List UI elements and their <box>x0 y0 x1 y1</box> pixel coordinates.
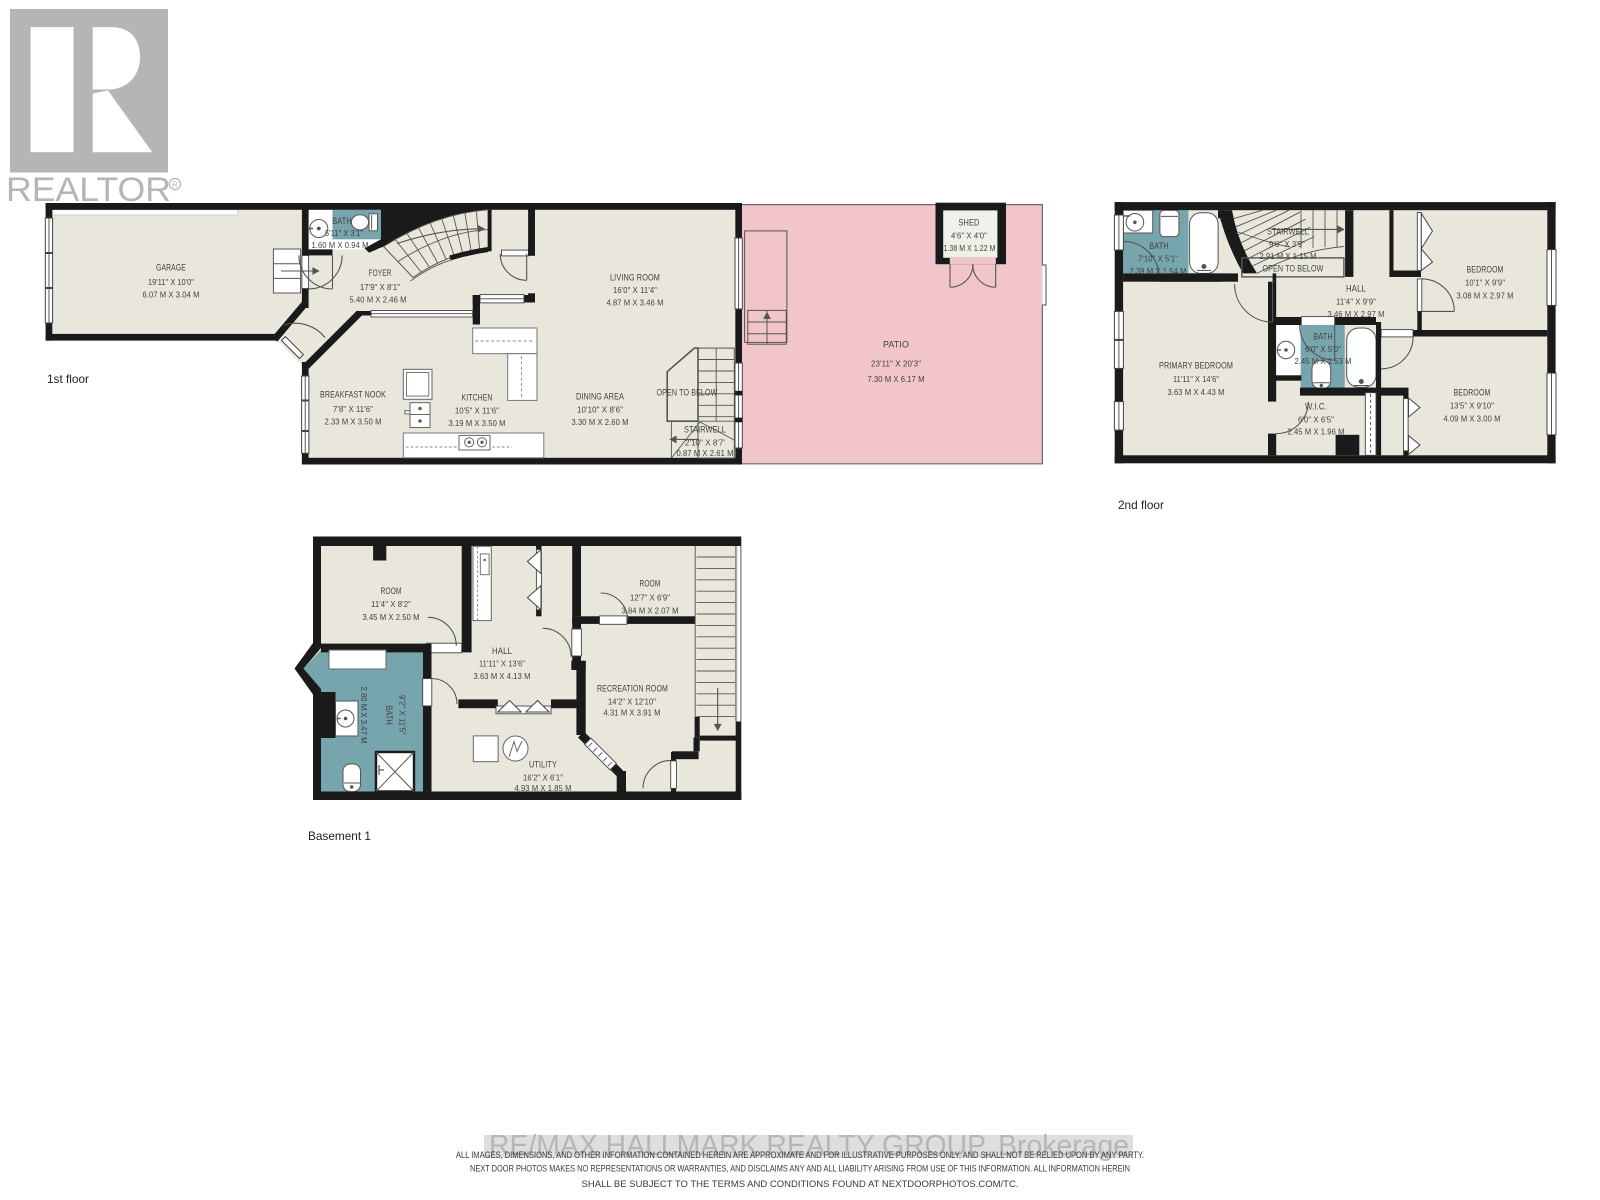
svg-text:BEDROOM: BEDROOM <box>1467 265 1504 275</box>
svg-text:11'11" X 13'6": 11'11" X 13'6" <box>479 659 525 669</box>
svg-text:RECREATION ROOM: RECREATION ROOM <box>597 684 668 694</box>
svg-text:FOYER: FOYER <box>369 268 392 278</box>
svg-text:3.45 M X 2.50 M: 3.45 M X 2.50 M <box>363 612 420 622</box>
svg-text:HALL: HALL <box>492 646 512 656</box>
svg-text:4.31 M X 3.91 M: 4.31 M X 3.91 M <box>604 708 661 718</box>
svg-text:3.30 M X 2.60 M: 3.30 M X 2.60 M <box>572 417 629 427</box>
svg-text:OPEN TO BELOW: OPEN TO BELOW <box>1263 264 1324 274</box>
svg-text:19'11" X 10'0": 19'11" X 10'0" <box>148 277 194 287</box>
svg-text:11'4" X 9'9": 11'4" X 9'9" <box>1336 297 1376 307</box>
svg-text:16'2" X 6'1": 16'2" X 6'1" <box>523 773 563 783</box>
svg-text:BREAKFAST NOOK: BREAKFAST NOOK <box>320 390 387 400</box>
svg-text:HALL: HALL <box>1346 284 1366 294</box>
svg-text:2.91 M X 1.15 M: 2.91 M X 1.15 M <box>1260 251 1317 261</box>
svg-text:5.40 M X 2.46 M: 5.40 M X 2.46 M <box>350 295 407 305</box>
svg-text:ROOM: ROOM <box>640 579 661 589</box>
svg-text:KITCHEN: KITCHEN <box>462 393 493 403</box>
svg-text:1.38 M X 1.22 M: 1.38 M X 1.22 M <box>944 243 996 253</box>
svg-text:11'4" X 8'2": 11'4" X 8'2" <box>371 599 411 609</box>
svg-text:2.80 M X 3.47 M: 2.80 M X 3.47 M <box>359 687 369 744</box>
svg-text:SHED: SHED <box>959 218 980 228</box>
svg-text:4'6" X 4'0": 4'6" X 4'0" <box>951 231 987 241</box>
svg-text:DINING AREA: DINING AREA <box>576 392 625 402</box>
svg-text:9'2" X 11'5": 9'2" X 11'5" <box>398 695 408 735</box>
svg-text:16'0" X 11'4": 16'0" X 11'4" <box>613 285 657 295</box>
svg-text:3.84 M X 2.07 M: 3.84 M X 2.07 M <box>622 606 679 616</box>
svg-text:0.87 M X 2.61 M: 0.87 M X 2.61 M <box>677 448 734 458</box>
svg-text:6'0" X 5'0": 6'0" X 5'0" <box>1305 344 1341 354</box>
svg-text:6'0" X 6'5": 6'0" X 6'5" <box>1298 415 1334 425</box>
svg-text:4.93 M X 1.85 M: 4.93 M X 1.85 M <box>515 783 572 793</box>
svg-text:UTILITY: UTILITY <box>529 760 557 770</box>
svg-text:12'7" X 6'9": 12'7" X 6'9" <box>630 593 670 603</box>
svg-text:10'1" X 9'9": 10'1" X 9'9" <box>1465 278 1505 288</box>
svg-text:2.33 M X 3.50 M: 2.33 M X 3.50 M <box>325 417 382 427</box>
svg-text:GARAGE: GARAGE <box>156 263 186 273</box>
svg-text:17'9" X 8'1": 17'9" X 8'1" <box>360 282 400 292</box>
svg-text:SHALL BE SUBJECT TO THE TERMS: SHALL BE SUBJECT TO THE TERMS AND CONDIT… <box>582 1179 1019 1190</box>
svg-text:ROOM: ROOM <box>381 586 402 596</box>
svg-text:STAIRWELL: STAIRWELL <box>684 425 726 435</box>
svg-text:11'11" X 14'6": 11'11" X 14'6" <box>1173 374 1219 384</box>
svg-text:6.07 M X 3.04 M: 6.07 M X 3.04 M <box>143 290 200 300</box>
svg-text:3.63 M X 4.43 M: 3.63 M X 4.43 M <box>1168 387 1225 397</box>
svg-text:2.45 M X 1.53 M: 2.45 M X 1.53 M <box>1295 356 1352 366</box>
svg-text:PATIO: PATIO <box>883 340 909 350</box>
svg-text:3.46 M X 2.97 M: 3.46 M X 2.97 M <box>1328 309 1385 319</box>
svg-text:BATH: BATH <box>332 216 352 226</box>
svg-text:Basement 1: Basement 1 <box>308 829 371 843</box>
svg-text:2'10" X 8'7': 2'10" X 8'7' <box>685 438 725 448</box>
svg-text:3.63 M X 4.13 M: 3.63 M X 4.13 M <box>474 671 531 681</box>
svg-text:NEXT DOOR PHOTOS MAKES NO REPR: NEXT DOOR PHOTOS MAKES NO REPRESENTATION… <box>470 1164 1130 1175</box>
svg-text:W.I.C.: W.I.C. <box>1305 402 1327 412</box>
svg-text:BEDROOM: BEDROOM <box>1454 388 1491 398</box>
svg-text:7'10" X 5'1": 7'10" X 5'1" <box>1138 254 1178 264</box>
svg-text:13'5" X 9'10": 13'5" X 9'10" <box>1450 401 1494 411</box>
svg-text:2.45 M X 1.96 M: 2.45 M X 1.96 M <box>1288 427 1345 437</box>
svg-text:ALL IMAGES, DIMENSIONS, AND OT: ALL IMAGES, DIMENSIONS, AND OTHER INFORM… <box>456 1150 1144 1161</box>
svg-text:BATH: BATH <box>1149 241 1169 251</box>
svg-text:7'8" X 11'6": 7'8" X 11'6" <box>333 404 373 414</box>
svg-text:14'2" X 12'10": 14'2" X 12'10" <box>608 697 656 707</box>
svg-text:STAIRWELL: STAIRWELL <box>1267 227 1309 237</box>
svg-text:4.87 M X 3.46 M: 4.87 M X 3.46 M <box>607 298 664 308</box>
svg-text:10'5" X 11'6": 10'5" X 11'6" <box>455 406 499 416</box>
svg-text:OPEN TO BELOW: OPEN TO BELOW <box>657 388 718 398</box>
svg-text:3.08 M X 2.97 M: 3.08 M X 2.97 M <box>1457 291 1514 301</box>
svg-text:2nd floor: 2nd floor <box>1118 498 1164 512</box>
svg-text:R: R <box>172 181 178 190</box>
svg-text:3.19 M X 3.50 M: 3.19 M X 3.50 M <box>449 418 506 428</box>
svg-text:10'10" X 8'6": 10'10" X 8'6" <box>577 405 623 415</box>
svg-text:23'11" X 20'3": 23'11" X 20'3" <box>871 359 921 369</box>
svg-text:BATH: BATH <box>384 705 394 725</box>
svg-text:7.30 M X 6.17 M: 7.30 M X 6.17 M <box>868 374 925 384</box>
svg-text:5'11" X 3'1": 5'11" X 3'1" <box>325 228 363 238</box>
svg-text:1.60 M X 0.94 M: 1.60 M X 0.94 M <box>312 240 369 250</box>
svg-text:1st floor: 1st floor <box>47 372 89 386</box>
svg-text:LIVING ROOM: LIVING ROOM <box>610 273 660 283</box>
svg-text:4.09 M X 3.00 M: 4.09 M X 3.00 M <box>1444 414 1501 424</box>
svg-text:9'6" X 3'9": 9'6" X 3'9" <box>1269 239 1305 249</box>
svg-text:2.39 M X 1.54 M: 2.39 M X 1.54 M <box>1130 266 1187 276</box>
svg-text:BATH: BATH <box>1313 332 1333 342</box>
svg-text:PRIMARY BEDROOM: PRIMARY BEDROOM <box>1159 361 1233 371</box>
